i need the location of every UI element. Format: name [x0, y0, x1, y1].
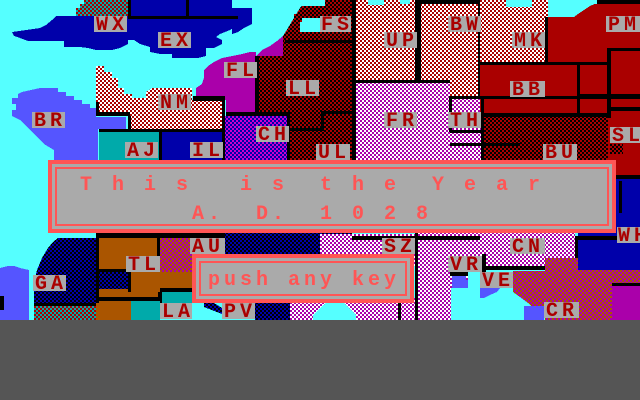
svg-text:This: This [80, 174, 208, 197]
svg-text:CN: CN [512, 236, 544, 259]
svg-text:CR: CR [546, 300, 578, 323]
svg-text:WX: WX [96, 14, 128, 37]
svg-text:AJ: AJ [127, 140, 159, 163]
svg-text:FL: FL [226, 60, 258, 83]
svg-text:1028: 1028 [320, 203, 448, 226]
svg-text:FR: FR [386, 110, 418, 133]
svg-text:TL: TL [128, 254, 160, 277]
svg-text:EX: EX [160, 30, 192, 53]
svg-text:VR: VR [450, 254, 482, 277]
svg-text:NM: NM [160, 92, 192, 115]
svg-text:A.: A. [192, 203, 224, 226]
svg-text:BW: BW [450, 14, 482, 37]
svg-text:IL: IL [192, 140, 224, 163]
svg-text:PM: PM [608, 14, 640, 37]
svg-text:the: the [320, 174, 416, 197]
svg-text:Year: Year [432, 174, 560, 197]
svg-text:BB: BB [512, 79, 544, 102]
svg-text:LL: LL [288, 78, 320, 101]
svg-text:push any key: push any key [208, 269, 400, 292]
svg-text:SL: SL [612, 125, 640, 148]
svg-text:MK: MK [514, 30, 546, 53]
svg-text:UP: UP [386, 30, 418, 53]
svg-text:CH: CH [258, 124, 290, 147]
svg-text:TH: TH [450, 110, 482, 133]
svg-text:BR: BR [34, 110, 66, 133]
svg-text:is: is [240, 174, 304, 197]
svg-text:FS: FS [321, 14, 353, 37]
svg-text:WH: WH [618, 225, 640, 248]
svg-text:D.: D. [256, 203, 288, 226]
svg-text:VE: VE [482, 270, 514, 293]
svg-text:GA: GA [35, 273, 67, 296]
